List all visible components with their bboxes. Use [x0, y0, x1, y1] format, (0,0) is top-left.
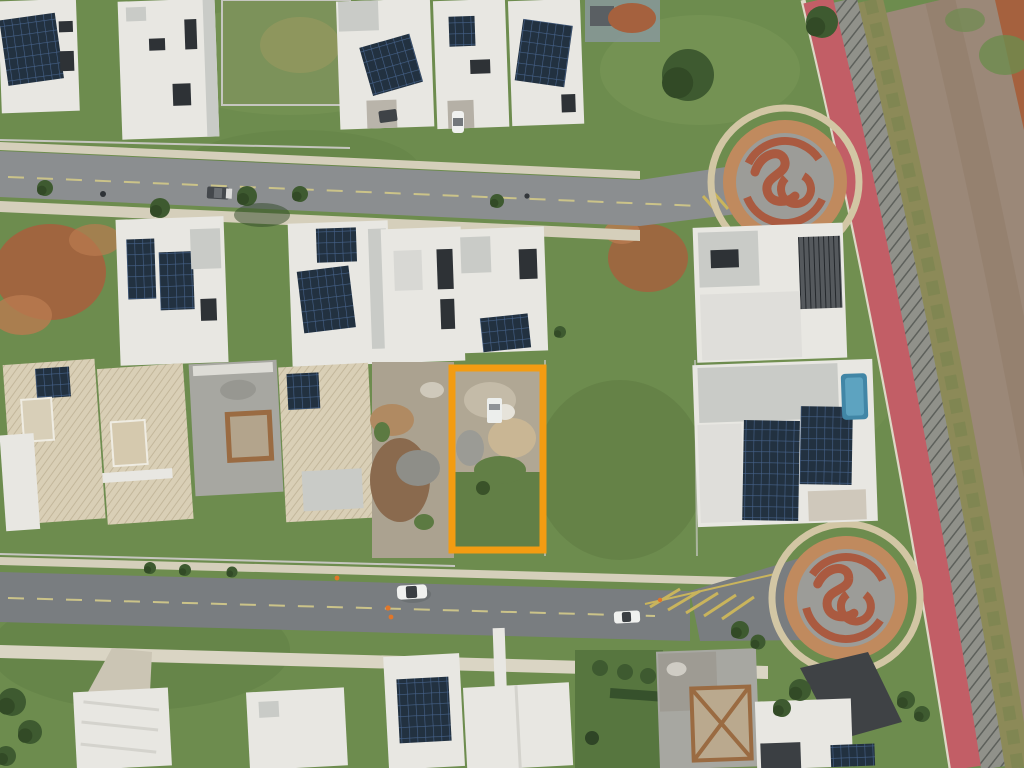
house-low-3-construction — [189, 360, 284, 496]
house-low-1 — [0, 359, 106, 532]
house-mid-4 — [456, 226, 548, 353]
motorbike-upper-road — [100, 191, 106, 197]
house-top-5 — [508, 0, 584, 126]
white-car-driveway — [452, 111, 464, 133]
house-mid-3 — [381, 227, 466, 364]
dark-car-driveway — [378, 109, 397, 123]
house-bot-3 — [383, 653, 465, 768]
house-low-2 — [95, 363, 194, 525]
construction-debris-lot — [370, 362, 454, 558]
garden-lot — [575, 650, 666, 768]
house-top-4 — [433, 0, 509, 129]
house-top-2 — [118, 0, 220, 140]
big-house-north — [693, 223, 848, 363]
big-house-south — [692, 359, 878, 527]
house-top-3 — [336, 0, 434, 130]
walled-vacant-lot-top — [222, 0, 350, 105]
dark-vehicle-upper-road — [207, 186, 233, 199]
walled-compound-top-right — [585, 0, 660, 42]
house-bot-2 — [246, 687, 348, 768]
house-bot-4 — [463, 682, 573, 768]
house-top-1 — [0, 0, 80, 113]
small-vehicle-upper-road — [524, 193, 529, 198]
house-bot-5-construction — [656, 648, 760, 768]
white-car-2-lower-road — [614, 610, 641, 623]
aerial-photo — [0, 0, 1024, 768]
house-mid-1 — [116, 216, 229, 366]
house-bot-1 — [73, 687, 172, 768]
highlighted-lot-interior — [452, 368, 543, 550]
aerial-photo-canvas — [0, 0, 1024, 768]
house-mid-2 — [288, 220, 393, 366]
house-low-4 — [278, 363, 376, 522]
